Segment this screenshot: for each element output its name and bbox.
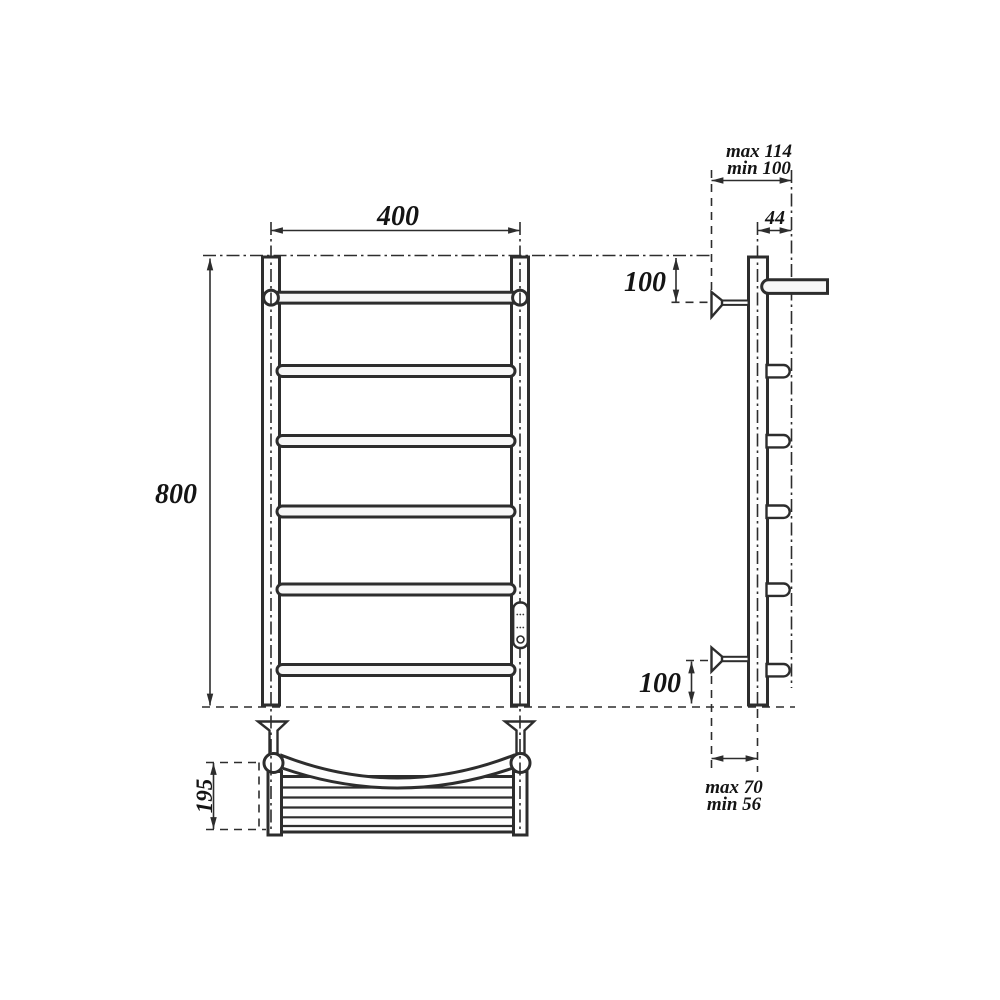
dim-label-wall-bottom-min: min 56 [707, 794, 762, 815]
dim-label-plan-depth: 195 [192, 779, 217, 814]
switch-housing[interactable] [513, 603, 528, 649]
dim-plan-depth: 195 [192, 763, 266, 832]
dim-side-bar-offset: 44 [758, 207, 792, 231]
centre-axes [271, 222, 520, 833]
dim-label-top-offset: 100 [624, 267, 666, 298]
dim-side-wall-top: max 114 min 100 [712, 141, 792, 181]
dim-label-front-width: 400 [376, 201, 419, 232]
front-view [263, 257, 529, 705]
dim-side-wall-bottom: max 70 min 56 [705, 759, 763, 816]
rung-stub [767, 435, 790, 447]
control-panel [513, 603, 528, 649]
rung-stub [767, 664, 790, 676]
drawing-canvas: 400 800 195 max 114 min 100 44 100 100 m… [0, 0, 1000, 1000]
dim-front-height: 800 [155, 259, 210, 706]
top-rail [271, 292, 520, 303]
dim-front-width: 400 [271, 201, 520, 232]
wall-bracket-upper [712, 292, 723, 317]
reference-lines [202, 256, 795, 708]
wall-bracket-plan-left [258, 722, 287, 754]
rung-stub [767, 506, 790, 518]
bracket-stem-upper [722, 301, 749, 305]
towel-rail-technical-drawing: 400 800 195 max 114 min 100 44 100 100 m… [0, 0, 1000, 1000]
dim-label-front-height: 800 [155, 479, 197, 510]
plan-post-circle-left [264, 754, 283, 773]
wall-bracket-lower [712, 648, 723, 672]
rung-bar [277, 436, 515, 447]
rung-bar [277, 665, 515, 676]
plan-left-post [268, 772, 282, 836]
rung-stub [767, 365, 790, 377]
dim-label-wall-min: min 100 [727, 158, 791, 179]
rung-bar [277, 584, 515, 595]
plan-view [258, 722, 534, 836]
rung-bar [277, 366, 515, 377]
rung-bar [277, 506, 515, 517]
dim-label-bottom-offset: 100 [639, 668, 681, 699]
rung-stub [767, 584, 790, 596]
curved-rail-side [762, 280, 828, 294]
bracket-stem-lower [722, 657, 749, 661]
dim-label-bar-offset: 44 [764, 207, 785, 229]
dim-side-bottom-offset: 100 [639, 661, 712, 704]
dim-side-top-offset: 100 [624, 258, 712, 302]
side-view [712, 222, 828, 710]
